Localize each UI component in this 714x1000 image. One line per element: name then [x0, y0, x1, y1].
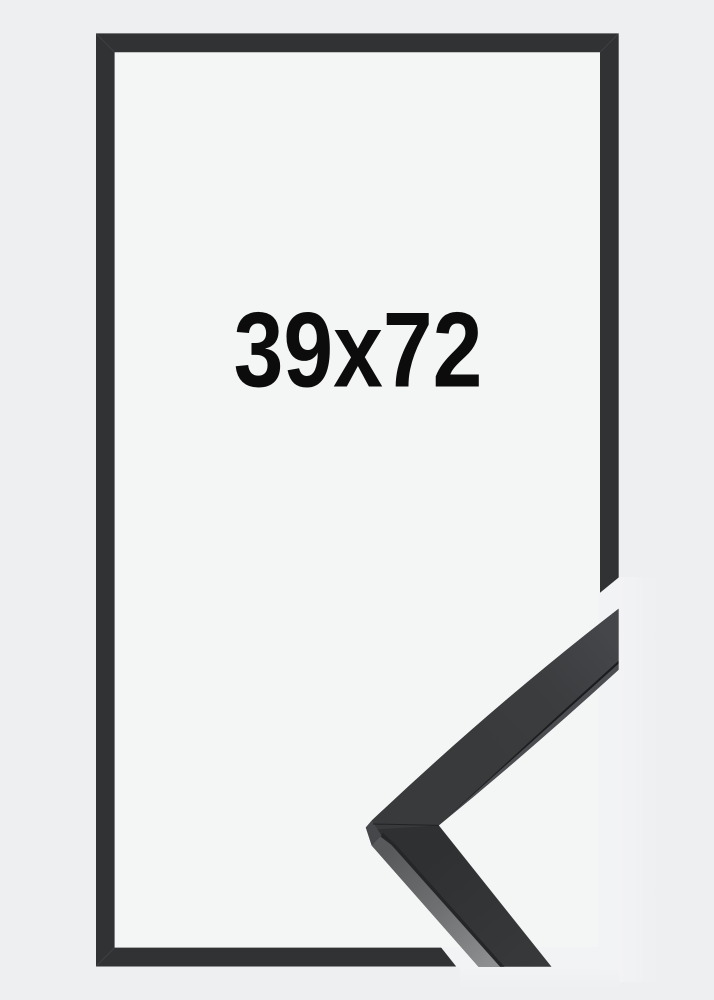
svg-text:39x72: 39x72	[234, 290, 483, 409]
